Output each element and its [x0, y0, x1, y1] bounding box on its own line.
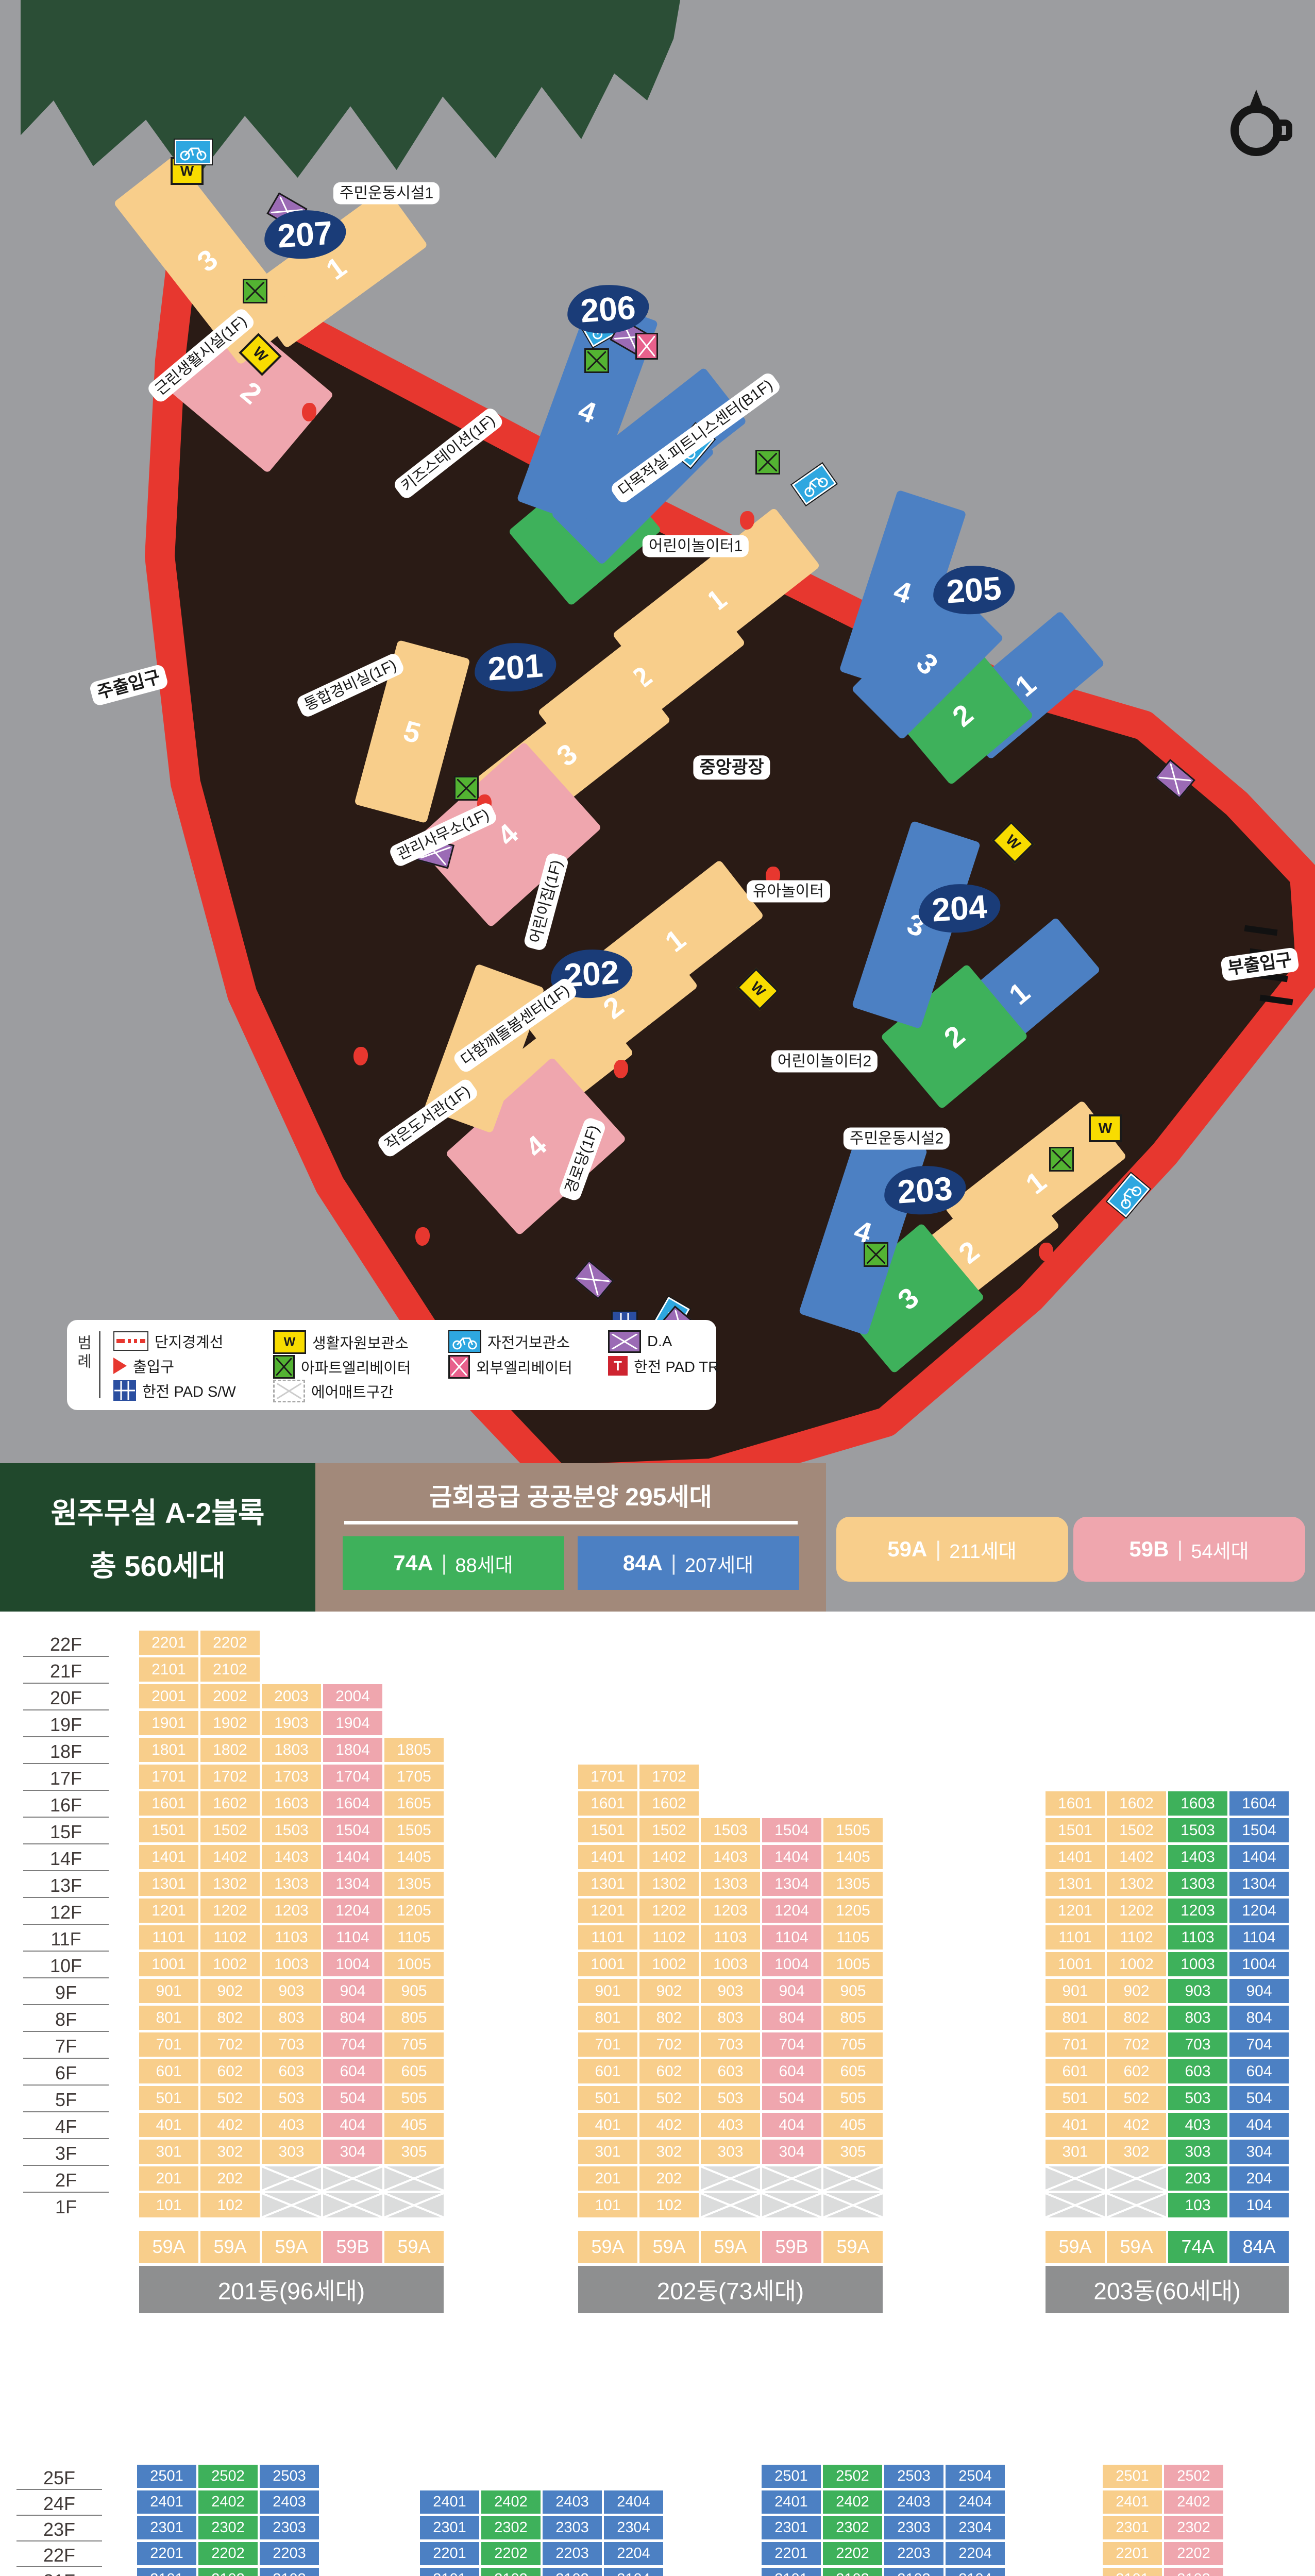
unit-cell: 304	[762, 2140, 821, 2164]
unit-cell: 305	[384, 2140, 444, 2164]
unit-cell: 804	[762, 2006, 821, 2030]
unit-cell: 401	[1046, 2113, 1105, 2137]
unit-cell: 2301	[137, 2516, 196, 2539]
unit-cell: 2203	[543, 2542, 602, 2565]
unit-cell: 1305	[823, 1872, 883, 1896]
unit-cell: 202	[200, 2166, 260, 2191]
unit-cell: 2401	[762, 2490, 821, 2514]
unit-cell: 301	[578, 2140, 637, 2164]
legend-item-da: D.A	[608, 1330, 672, 1353]
floor-label: 20F	[21, 1686, 111, 1710]
unit-cell: 704	[762, 2032, 821, 2057]
unit-cell: 1602	[1107, 1791, 1166, 1816]
unit-cell: 701	[1046, 2032, 1105, 2057]
unit-cell: 1204	[1229, 1899, 1289, 1923]
hatched-cell	[1046, 2193, 1105, 2217]
unit-cell: 2101	[1103, 2568, 1162, 2576]
unit-cell: 701	[139, 2032, 198, 2057]
floor-label: 5F	[21, 2088, 111, 2112]
legend-item-label: D.A	[647, 1333, 672, 1350]
floor-label: 19F	[21, 1713, 111, 1737]
unit-cell: 2502	[1164, 2465, 1223, 2488]
unit-cell: 2104	[946, 2568, 1005, 2576]
unit-cell: 1105	[823, 1925, 883, 1950]
unit-cell: 701	[578, 2032, 637, 2057]
unit-cell: 1701	[578, 1765, 637, 1789]
unit-cell: 103	[1168, 2193, 1227, 2217]
unit-cell: 1005	[384, 1952, 444, 1976]
facility-label: 주민운동시설1	[333, 182, 440, 205]
air-mat-icon	[273, 1380, 305, 1402]
unit-cell: 2201	[139, 1631, 198, 1655]
page: 1234520112345202123420312320412342051234…	[0, 0, 1315, 2576]
unit-cell: 1102	[639, 1925, 699, 1950]
apartment-elevator-icon	[755, 450, 780, 474]
unit-cell: 903	[1168, 1979, 1227, 2003]
unit-cell: 1802	[200, 1738, 260, 1762]
unit-cell: 1101	[578, 1925, 637, 1950]
unit-cell: 502	[1107, 2086, 1166, 2110]
unit-cell: 1503	[1168, 1818, 1227, 1842]
unit-cell: 1702	[200, 1765, 260, 1789]
unit-cell: 201	[139, 2166, 198, 2191]
unit-cell: 1002	[200, 1952, 260, 1976]
unit-cell: 1002	[1107, 1952, 1166, 1976]
unit-cell: 1202	[639, 1899, 699, 1923]
type-cell: 59A	[578, 2231, 637, 2263]
info-bar: 원주무실 A-2블록 총 560세대 금회공급 공공분양 295세대 74A|8…	[0, 1463, 1315, 1612]
unit-cell: 901	[578, 1979, 637, 2003]
hatched-cell	[823, 2166, 883, 2191]
unit-cell: 803	[1168, 2006, 1227, 2030]
unit-cell: 2201	[762, 2542, 821, 2565]
unit-cell: 204	[1229, 2166, 1289, 2191]
hanjeon-pad-tr-icon: T	[608, 1356, 628, 1376]
hatched-cell	[384, 2193, 444, 2217]
unit-cell: 1203	[701, 1899, 760, 1923]
unit-cell: 501	[1046, 2086, 1105, 2110]
unit-cell: 405	[823, 2113, 883, 2137]
unit-cell: 1505	[823, 1818, 883, 1842]
unit-cell: 1502	[200, 1818, 260, 1842]
facility-label: 어린이놀이터2	[771, 1050, 878, 1073]
unit-cell: 1402	[639, 1845, 699, 1869]
unit-cell: 402	[1107, 2113, 1166, 2137]
floor-label: 1F	[21, 2195, 111, 2219]
unit-cell: 601	[578, 2059, 637, 2083]
unit-cell: 404	[1229, 2113, 1289, 2137]
unit-cell: 801	[139, 2006, 198, 2030]
unit-cell: 702	[1107, 2032, 1166, 2057]
legend-item-label: 단지경계선	[155, 1330, 223, 1352]
unit-cell: 1104	[762, 1925, 821, 1950]
unit-cell: 1201	[578, 1899, 637, 1923]
legend-item-label: 출입구	[133, 1355, 174, 1377]
unit-cell: 1402	[1107, 1845, 1166, 1869]
hatched-cell	[323, 2166, 382, 2191]
unit-cell: 1303	[262, 1872, 321, 1896]
unit-cell: 2302	[481, 2516, 541, 2539]
unit-cell: 1204	[762, 1899, 821, 1923]
type-cell: 59A	[384, 2231, 444, 2263]
hatched-cell	[262, 2193, 321, 2217]
unit-cell: 805	[384, 2006, 444, 2030]
unit-cell: 605	[823, 2059, 883, 2083]
unit-cell: 1501	[139, 1818, 198, 1842]
unit-cell: 1203	[1168, 1899, 1227, 1923]
unit-cell: 905	[823, 1979, 883, 2003]
unit-cell: 703	[1168, 2032, 1227, 2057]
floor-label: 24F	[14, 2492, 105, 2515]
unit-cell: 604	[762, 2059, 821, 2083]
unit-cell: 2202	[823, 2542, 882, 2565]
unit-cell: 2304	[946, 2516, 1005, 2539]
unit-cell: 303	[701, 2140, 760, 2164]
unit-cell: 902	[200, 1979, 260, 2003]
unit-cell: 1504	[762, 1818, 821, 1842]
unit-cell: 1501	[578, 1818, 637, 1842]
unit-cell: 1004	[1229, 1952, 1289, 1976]
unit-cell: 501	[139, 2086, 198, 2110]
unit-cell: 2401	[1103, 2490, 1162, 2514]
unit-cell: 2102	[481, 2568, 541, 2576]
unit-cell: 1201	[139, 1899, 198, 1923]
facility-label: 주민운동시설2	[844, 1128, 950, 1150]
legend-divider	[99, 1331, 100, 1398]
unit-cell: 2303	[884, 2516, 943, 2539]
unit-cell: 603	[262, 2059, 321, 2083]
unit-cell: 1503	[262, 1818, 321, 1842]
unit-cell: 902	[1107, 1979, 1166, 2003]
unit-cell: 2103	[260, 2568, 319, 2576]
unit-cell: 803	[701, 2006, 760, 2030]
block-summary: 원주무실 A-2블록 총 560세대	[0, 1463, 315, 1612]
unit-cell: 805	[823, 2006, 883, 2030]
floor-label: 21F	[14, 2569, 105, 2576]
unit-cell: 1601	[1046, 1791, 1105, 1816]
unit-cell: 504	[1229, 2086, 1289, 2110]
unit-cell: 602	[1107, 2059, 1166, 2083]
unit-cell: 1504	[1229, 1818, 1289, 1842]
unit-cell: 802	[639, 2006, 699, 2030]
unit-cell: 1402	[200, 1845, 260, 1869]
unit-cell: 904	[323, 1979, 382, 2003]
hatched-cell	[823, 2193, 883, 2217]
unit-cell: 2302	[1164, 2516, 1223, 2539]
unit-cell: 304	[323, 2140, 382, 2164]
unit-cell: 601	[1046, 2059, 1105, 2083]
hatched-cell	[262, 2166, 321, 2191]
unit-cell: 503	[701, 2086, 760, 2110]
unit-cell: 1401	[578, 1845, 637, 1869]
unit-cell: 502	[639, 2086, 699, 2110]
floor-label: 16F	[21, 1793, 111, 1817]
legend-item-label: 아파트엘리베이터	[301, 1356, 411, 1378]
unit-cell: 502	[200, 2086, 260, 2110]
unit-cell: 2204	[946, 2542, 1005, 2565]
apartment-elevator-icon	[864, 1242, 888, 1267]
unit-cell: 1501	[1046, 1818, 1105, 1842]
block-total: 총 560세대	[90, 1543, 226, 1585]
unit-cell: 1002	[639, 1952, 699, 1976]
legend: 범례 단지경계선W생활자원보관소자전거보관소D.A출입구아파트엘리베이터외부엘리…	[67, 1320, 716, 1410]
unit-cell: 804	[323, 2006, 382, 2030]
unit-cell: 2202	[1164, 2542, 1223, 2565]
unit-cell: 2204	[604, 2542, 663, 2565]
unit-cell: 2303	[543, 2516, 602, 2539]
floor-label: 18F	[21, 1739, 111, 1764]
unit-cell: 1901	[139, 1711, 198, 1735]
unit-cell: 1502	[1107, 1818, 1166, 1842]
floor-label: 25F	[14, 2466, 105, 2489]
bicycle-storage-icon	[448, 1330, 481, 1353]
unit-cell: 505	[384, 2086, 444, 2110]
hatched-cell	[762, 2193, 821, 2217]
hatched-cell	[384, 2166, 444, 2191]
unit-cell: 1903	[262, 1711, 321, 1735]
floor-label: 6F	[21, 2061, 111, 2085]
unit-cell: 2401	[420, 2490, 479, 2514]
unit-cell: 104	[1229, 2193, 1289, 2217]
floor-label: 12F	[21, 1900, 111, 1924]
unit-cell: 1704	[323, 1765, 382, 1789]
resource-storage-icon: W	[1089, 1114, 1122, 1142]
unit-cell: 702	[639, 2032, 699, 2057]
unit-cell: 2402	[198, 2490, 258, 2514]
block-name: 원주무실 A-2블록	[51, 1490, 265, 1532]
supply-divider	[344, 1521, 798, 1524]
unit-cell: 2302	[823, 2516, 882, 2539]
unit-cell: 1003	[262, 1952, 321, 1976]
unit-cell: 2202	[481, 2542, 541, 2565]
hatched-cell	[701, 2166, 760, 2191]
legend-item-label: 한전 PAD S/W	[142, 1380, 236, 1401]
floor-label: 23F	[14, 2518, 105, 2541]
unit-cell: 1605	[384, 1791, 444, 1816]
unit-cell: 2504	[946, 2465, 1005, 2488]
unit-cell: 1302	[1107, 1872, 1166, 1896]
unit-cell: 1401	[1046, 1845, 1105, 1869]
unit-cell: 302	[639, 2140, 699, 2164]
unit-cell: 2501	[137, 2465, 196, 2488]
unit-cell: 1101	[1046, 1925, 1105, 1950]
unit-cell: 1601	[578, 1791, 637, 1816]
unit-cell: 2403	[884, 2490, 943, 2514]
legend-item-entrance: 출입구	[113, 1355, 174, 1377]
unit-cell: 302	[200, 2140, 260, 2164]
unit-cell: 1602	[200, 1791, 260, 1816]
unit-cell: 1205	[823, 1899, 883, 1923]
floor-label: 9F	[21, 1980, 111, 2005]
unit-cell: 2203	[260, 2542, 319, 2565]
unit-cell: 1204	[323, 1899, 382, 1923]
floor-label: 8F	[21, 2007, 111, 2031]
unit-cell: 1801	[139, 1738, 198, 1762]
unit-cell: 1405	[823, 1845, 883, 1869]
unit-cell: 101	[578, 2193, 637, 2217]
unit-cell: 802	[1107, 2006, 1166, 2030]
unit-cell: 2404	[604, 2490, 663, 2514]
legend-item-label: 생활자원보관소	[312, 1331, 409, 1353]
apartment-elevator-icon	[243, 279, 267, 303]
unit-cell: 1702	[639, 1765, 699, 1789]
unit-cell: 501	[578, 2086, 637, 2110]
hatched-cell	[701, 2193, 760, 2217]
bicycle-storage-icon	[175, 140, 212, 164]
unit-cell: 1603	[262, 1791, 321, 1816]
legend-item-resource-storage: W생활자원보관소	[273, 1330, 409, 1354]
resource-storage-icon: W	[273, 1330, 306, 1354]
unit-cell: 2202	[200, 1631, 260, 1655]
unit-cell: 403	[701, 2113, 760, 2137]
type-cell: 59A	[200, 2231, 260, 2263]
unit-cell: 404	[762, 2113, 821, 2137]
unit-cell: 703	[262, 2032, 321, 2057]
unit-cell: 2102	[823, 2568, 882, 2576]
unit-cell: 1102	[1107, 1925, 1166, 1950]
unit-cell: 2402	[481, 2490, 541, 2514]
hanjeon-pad-sw-icon	[113, 1380, 136, 1401]
unit-cell: 1604	[1229, 1791, 1289, 1816]
apartment-elevator-icon	[454, 776, 479, 801]
unit-cell: 2104	[604, 2568, 663, 2576]
legend-item-hanjeon-pad-tr: T한전 PAD TR	[608, 1355, 719, 1377]
unit-cell: 903	[262, 1979, 321, 2003]
type-chip-84a: 84A|207세대	[578, 1536, 799, 1590]
unit-cell: 2502	[823, 2465, 882, 2488]
unit-cell: 1103	[701, 1925, 760, 1950]
floor-label: 22F	[21, 1632, 111, 1656]
unit-cell: 2303	[260, 2516, 319, 2539]
unit-cell: 1505	[384, 1818, 444, 1842]
floor-label: 2F	[21, 2168, 111, 2192]
unit-cell: 901	[139, 1979, 198, 2003]
unit-cell: 2001	[139, 1684, 198, 1708]
unit-cell: 1403	[701, 1845, 760, 1869]
unit-cell: 2103	[543, 2568, 602, 2576]
unit-cell: 904	[1229, 1979, 1289, 2003]
unit-cell: 602	[639, 2059, 699, 2083]
unit-cell: 901	[1046, 1979, 1105, 2003]
apartment-elevator-icon	[273, 1355, 295, 1379]
unit-cell: 1701	[139, 1765, 198, 1789]
unit-cell: 2401	[137, 2490, 196, 2514]
type-cell: 59B	[323, 2231, 382, 2263]
legend-item-label: 외부엘리베이터	[476, 1356, 572, 1378]
unit-cell: 605	[384, 2059, 444, 2083]
unit-cell: 1202	[1107, 1899, 1166, 1923]
unit-cell: 2404	[946, 2490, 1005, 2514]
unit-cell: 505	[823, 2086, 883, 2110]
unit-cell: 2304	[604, 2516, 663, 2539]
unit-cell: 2301	[420, 2516, 479, 2539]
plaza-label: 중앙광장	[693, 755, 770, 779]
unit-cell: 1203	[262, 1899, 321, 1923]
unit-cell: 304	[1229, 2140, 1289, 2164]
unit-cell: 702	[200, 2032, 260, 2057]
unit-cell: 1302	[200, 1872, 260, 1896]
unit-cell: 801	[1046, 2006, 1105, 2030]
unit-cell: 1104	[1229, 1925, 1289, 1950]
unit-cell: 1004	[762, 1952, 821, 1976]
unit-cell: 2501	[1103, 2465, 1162, 2488]
site-boundary	[160, 264, 1311, 1480]
unit-cell: 1604	[323, 1791, 382, 1816]
unit-cell: 1103	[262, 1925, 321, 1950]
type-chip-74a: 74A|88세대	[343, 1536, 564, 1590]
legend-item-bicycle-storage: 자전거보관소	[448, 1330, 570, 1353]
unit-cell: 2102	[198, 2568, 258, 2576]
unit-cell: 2502	[198, 2465, 258, 2488]
unit-cell: 704	[323, 2032, 382, 2057]
compass-icon	[1225, 87, 1292, 166]
unit-cell: 1001	[139, 1952, 198, 1976]
type-cell: 59A	[823, 2231, 883, 2263]
unit-cell: 503	[262, 2086, 321, 2110]
unit-cell: 302	[1107, 2140, 1166, 2164]
unit-cell: 1001	[1046, 1952, 1105, 1976]
unit-cell: 1104	[323, 1925, 382, 1950]
external-elevator-icon	[635, 333, 658, 360]
unit-cell: 1902	[200, 1711, 260, 1735]
unit-cell: 1101	[139, 1925, 198, 1950]
unit-cell: 305	[823, 2140, 883, 2164]
unit-cell: 704	[1229, 2032, 1289, 2057]
unit-cell: 303	[262, 2140, 321, 2164]
unit-cell: 2301	[762, 2516, 821, 2539]
unit-cell: 1403	[1168, 1845, 1227, 1869]
unit-cell: 2403	[260, 2490, 319, 2514]
unit-cell: 2003	[262, 1684, 321, 1708]
unit-cell: 603	[701, 2059, 760, 2083]
unit-cell: 1003	[1168, 1952, 1227, 1976]
type-chip-59b: 59B|54세대	[1073, 1517, 1305, 1582]
unit-cell: 301	[1046, 2140, 1105, 2164]
unit-cell: 1001	[578, 1952, 637, 1976]
unit-cell: 1504	[323, 1818, 382, 1842]
type-chip-59a: 59A|211세대	[836, 1517, 1068, 1582]
legend-item-boundary-line: 단지경계선	[113, 1330, 223, 1352]
hatched-cell	[1107, 2166, 1166, 2191]
unit-cell: 2201	[137, 2542, 196, 2565]
unit-cell: 1301	[1046, 1872, 1105, 1896]
legend-item-label: 자전거보관소	[487, 1331, 570, 1352]
type-cell: 84A	[1229, 2231, 1289, 2263]
unit-cell: 2002	[200, 1684, 260, 1708]
unit-cell: 803	[262, 2006, 321, 2030]
unit-cell: 402	[200, 2113, 260, 2137]
unit-cell: 804	[1229, 2006, 1289, 2030]
unit-cell: 1304	[323, 1872, 382, 1896]
legend-item-label: 에어매트구간	[311, 1380, 394, 1402]
unit-cell: 1304	[762, 1872, 821, 1896]
unit-cell: 201	[578, 2166, 637, 2191]
unit-cell: 2101	[420, 2568, 479, 2576]
unit-cell: 2403	[543, 2490, 602, 2514]
unit-cell: 2302	[198, 2516, 258, 2539]
type-cell: 59A	[1046, 2231, 1105, 2263]
unit-cell: 2101	[137, 2568, 196, 2576]
unit-cell: 1202	[200, 1899, 260, 1923]
unit-cell: 1201	[1046, 1899, 1105, 1923]
table-footer-201: 201동(96세대)	[139, 2266, 444, 2313]
legend-item-hanjeon-pad-sw: 한전 PAD S/W	[113, 1380, 236, 1401]
floor-label: 13F	[21, 1873, 111, 1897]
unit-cell: 604	[323, 2059, 382, 2083]
da-icon	[608, 1330, 641, 1353]
type-cell: 59A	[701, 2231, 760, 2263]
unit-cell: 2501	[762, 2465, 821, 2488]
